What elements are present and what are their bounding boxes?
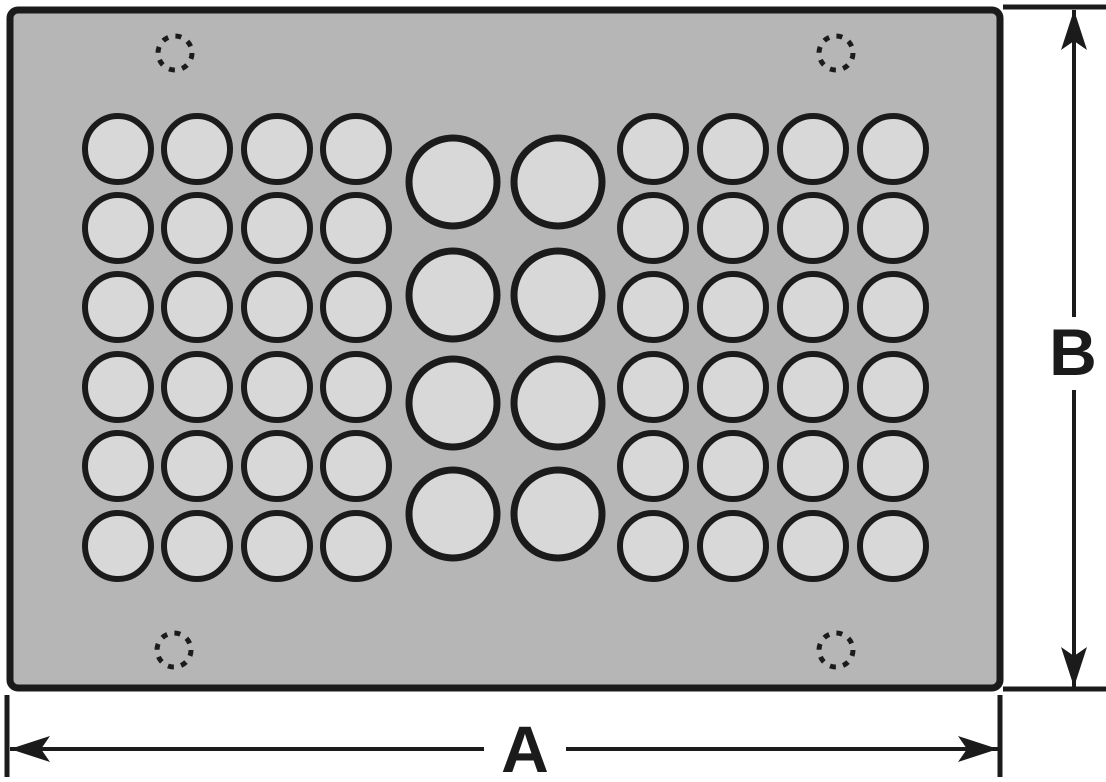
hole xyxy=(780,274,846,340)
hole xyxy=(780,195,846,261)
hole xyxy=(164,274,230,340)
hole xyxy=(164,195,230,261)
hole xyxy=(323,274,389,340)
hole xyxy=(860,433,926,499)
panel-drawing: A B xyxy=(0,0,1106,782)
hole xyxy=(244,433,310,499)
hole xyxy=(700,354,766,420)
hole xyxy=(85,274,151,340)
hole xyxy=(780,433,846,499)
hole xyxy=(164,433,230,499)
hole xyxy=(409,470,497,558)
hole xyxy=(323,195,389,261)
hole xyxy=(164,116,230,182)
hole xyxy=(323,354,389,420)
hole xyxy=(700,116,766,182)
hole xyxy=(244,354,310,420)
hole xyxy=(514,359,602,447)
hole xyxy=(780,116,846,182)
hole xyxy=(514,138,602,226)
hole xyxy=(700,433,766,499)
hole xyxy=(860,195,926,261)
hole xyxy=(860,354,926,420)
hole xyxy=(860,513,926,579)
hole xyxy=(323,513,389,579)
hole xyxy=(514,470,602,558)
dimension-b-label: B xyxy=(1049,315,1097,389)
hole xyxy=(85,433,151,499)
hole xyxy=(620,274,686,340)
hole xyxy=(700,195,766,261)
hole xyxy=(620,354,686,420)
dimension-a-label: A xyxy=(501,712,549,782)
hole xyxy=(323,116,389,182)
hole xyxy=(620,513,686,579)
hole xyxy=(780,513,846,579)
panel-plate xyxy=(10,10,1000,688)
hole xyxy=(409,138,497,226)
hole xyxy=(860,274,926,340)
hole xyxy=(514,251,602,339)
hole xyxy=(323,433,389,499)
hole xyxy=(85,195,151,261)
hole xyxy=(780,354,846,420)
panel-drawing-canvas: A B xyxy=(0,0,1106,782)
hole xyxy=(85,116,151,182)
hole xyxy=(700,513,766,579)
hole xyxy=(620,195,686,261)
hole xyxy=(409,359,497,447)
hole xyxy=(85,513,151,579)
hole xyxy=(164,354,230,420)
hole xyxy=(620,116,686,182)
hole xyxy=(860,116,926,182)
hole xyxy=(700,274,766,340)
hole xyxy=(409,251,497,339)
hole xyxy=(244,195,310,261)
hole xyxy=(164,513,230,579)
hole xyxy=(85,354,151,420)
hole xyxy=(244,274,310,340)
hole xyxy=(244,513,310,579)
hole xyxy=(244,116,310,182)
hole xyxy=(620,433,686,499)
